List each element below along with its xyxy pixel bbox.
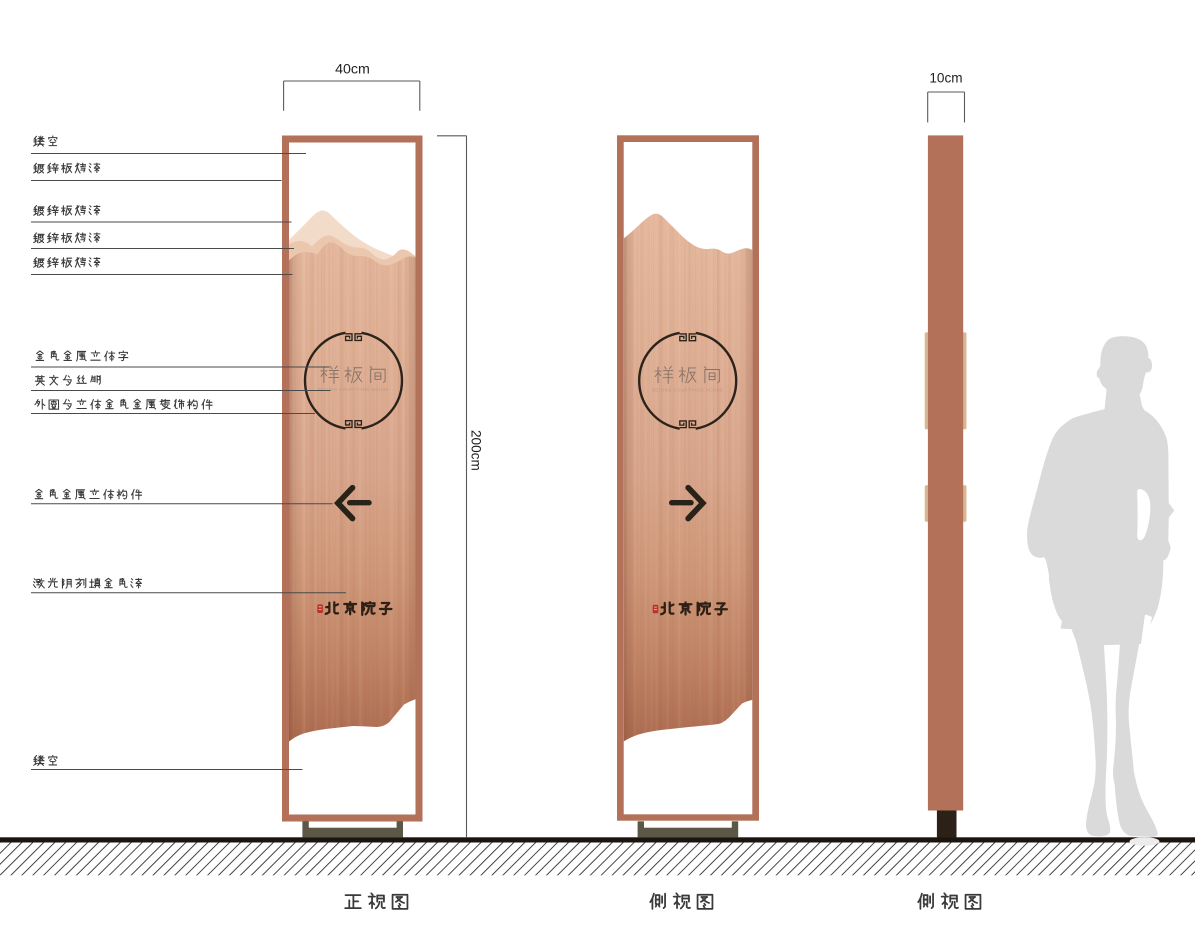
svg-text:40cm: 40cm — [335, 62, 370, 78]
svg-text:200cm: 200cm — [468, 430, 483, 471]
svg-text:10cm: 10cm — [929, 71, 962, 86]
svg-text:BEIJING COURTYARD HOUSE: BEIJING COURTYARD HOUSE — [652, 387, 723, 392]
svg-text:BEIJING COURTYARD HOUSE: BEIJING COURTYARD HOUSE — [318, 387, 389, 392]
